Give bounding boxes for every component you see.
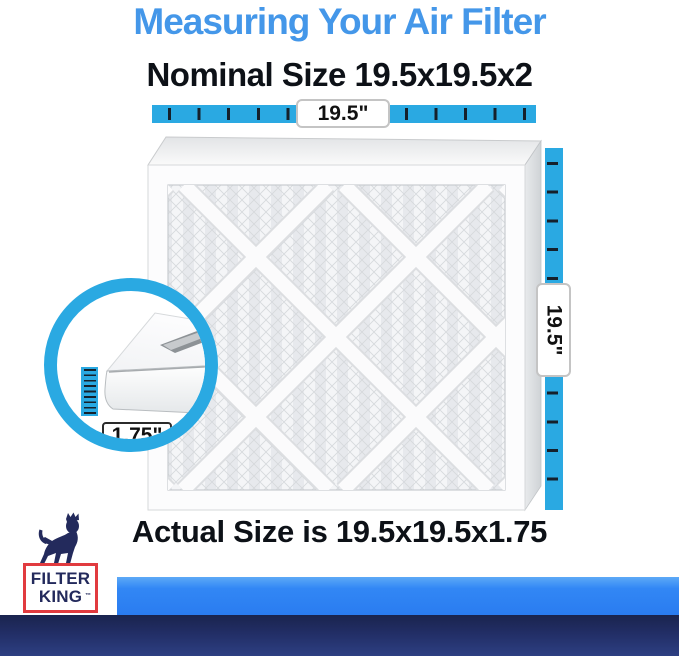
page-title: Measuring Your Air Filter	[0, 1, 679, 43]
brand-name-line2: KING ™	[39, 588, 82, 606]
depth-mini-ruler-ticks	[84, 369, 96, 414]
depth-inset-circle: 1.75"	[44, 278, 218, 452]
bottom-accent-bar-blue	[117, 577, 679, 615]
lion-tail	[39, 530, 48, 545]
brand-name-line1: FILTER	[31, 570, 90, 588]
lion-body	[40, 531, 78, 564]
lion-head	[66, 519, 79, 534]
actual-size-heading: Actual Size is 19.5x19.5x1.75	[0, 514, 679, 550]
infographic: Measuring Your Air Filter Nominal Size 1…	[0, 0, 679, 656]
height-label: 19.5"	[536, 283, 571, 377]
depth-label: 1.75"	[102, 422, 172, 449]
lion-icon	[30, 511, 94, 567]
depth-mini-ruler	[81, 367, 98, 416]
trademark-symbol: ™	[85, 587, 91, 605]
nominal-size-heading: Nominal Size 19.5x19.5x2	[0, 56, 679, 94]
bottom-accent-bar-navy	[0, 615, 679, 656]
filter-top-face	[148, 137, 541, 165]
width-label: 19.5"	[296, 99, 390, 128]
brand-badge: FILTER KING ™	[23, 563, 98, 613]
